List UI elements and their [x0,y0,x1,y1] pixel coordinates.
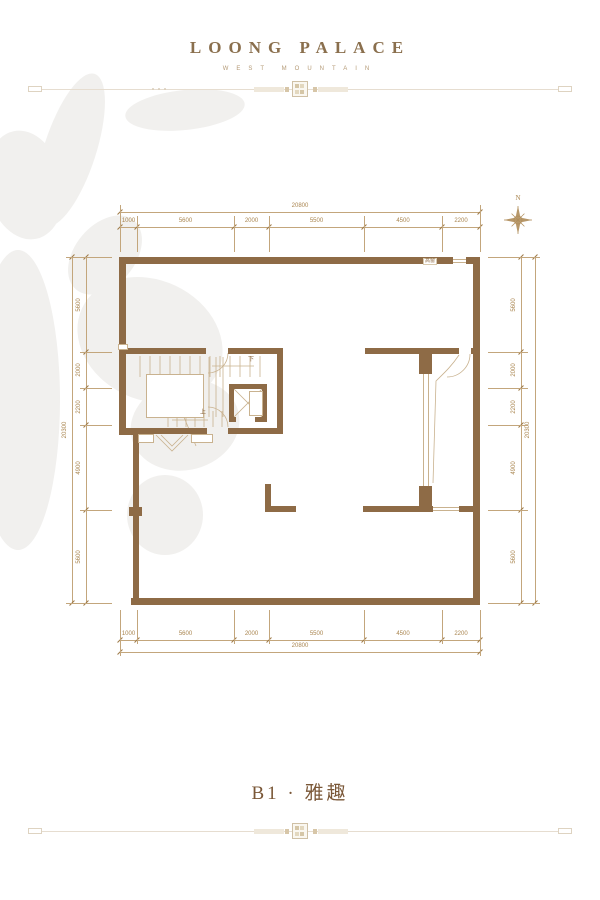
dim-right-segments-line [521,257,522,603]
dim-label: 1000 [122,631,135,637]
dim-extension [480,205,481,252]
dim-label: 2200 [76,400,82,413]
divider-end-cap [28,828,42,834]
dim-label: 2200 [454,631,467,637]
dim-label: 2200 [511,400,517,413]
dim-extension [137,216,138,252]
dim-label: 4900 [511,461,517,474]
dim-left-segments-line [86,257,87,603]
dim-label: 20800 [292,643,309,649]
seal-ornament [292,823,308,839]
dim-label: 5500 [310,631,323,637]
dim-top-total-line [120,212,480,213]
dim-label: 5600 [511,550,517,563]
dim-label: 5600 [511,298,517,311]
dim-label: 2000 [76,363,82,376]
dim-extension [364,216,365,252]
dim-extension [488,510,528,511]
dim-extension [364,610,365,644]
dim-label: 5500 [310,218,323,224]
floor-plan-page: LOONG PALACE WEST MOUNTAIN N [0,0,600,900]
dim-extension [80,425,112,426]
dim-label: 4900 [76,461,82,474]
dim-label: 5600 [76,298,82,311]
divider-bar-tick [285,829,289,834]
dim-left-total-line [72,257,73,603]
dim-label: 2000 [511,363,517,376]
dim-label: 2000 [245,631,258,637]
dim-label: 1000 [122,218,135,224]
dim-extension [488,388,528,389]
divider-end-cap [558,828,572,834]
divider-bar [318,829,348,834]
divider-bar [254,829,284,834]
dim-extension [480,610,481,656]
plan-title: B1 · 雅趣 [0,778,600,805]
dim-extension [80,388,112,389]
dim-label: 5600 [179,631,192,637]
dim-top-segments-line [120,227,480,228]
dim-right-total-line [535,257,536,603]
dim-extension [269,610,270,644]
divider-bar-tick [313,829,317,834]
dim-label: 20800 [292,203,309,209]
dim-extension [80,510,112,511]
dim-label: 4500 [396,631,409,637]
dim-extension [488,257,540,258]
dim-label: 4500 [396,218,409,224]
dim-extension [442,610,443,644]
dim-bottom-total-line [120,652,480,653]
dim-label: 5600 [179,218,192,224]
dim-extension [442,216,443,252]
dim-extension [120,205,121,252]
dim-extension [488,425,528,426]
dim-label: 2000 [245,218,258,224]
dim-extension [66,603,112,604]
dim-extension [488,603,540,604]
dim-extension [234,610,235,644]
dim-extension [234,216,235,252]
dim-extension [137,610,138,644]
dim-label: 20300 [62,422,68,439]
footer-divider [0,822,600,842]
dim-label: 2200 [454,218,467,224]
dim-extension [488,352,528,353]
dim-extension [269,216,270,252]
dimensions-layer: 1000560020005500450022002080010005600200… [0,0,600,900]
dim-extension [80,352,112,353]
dim-extension [120,610,121,656]
dim-bottom-segments-line [120,640,480,641]
dim-label: 5600 [76,550,82,563]
dim-extension [66,257,112,258]
